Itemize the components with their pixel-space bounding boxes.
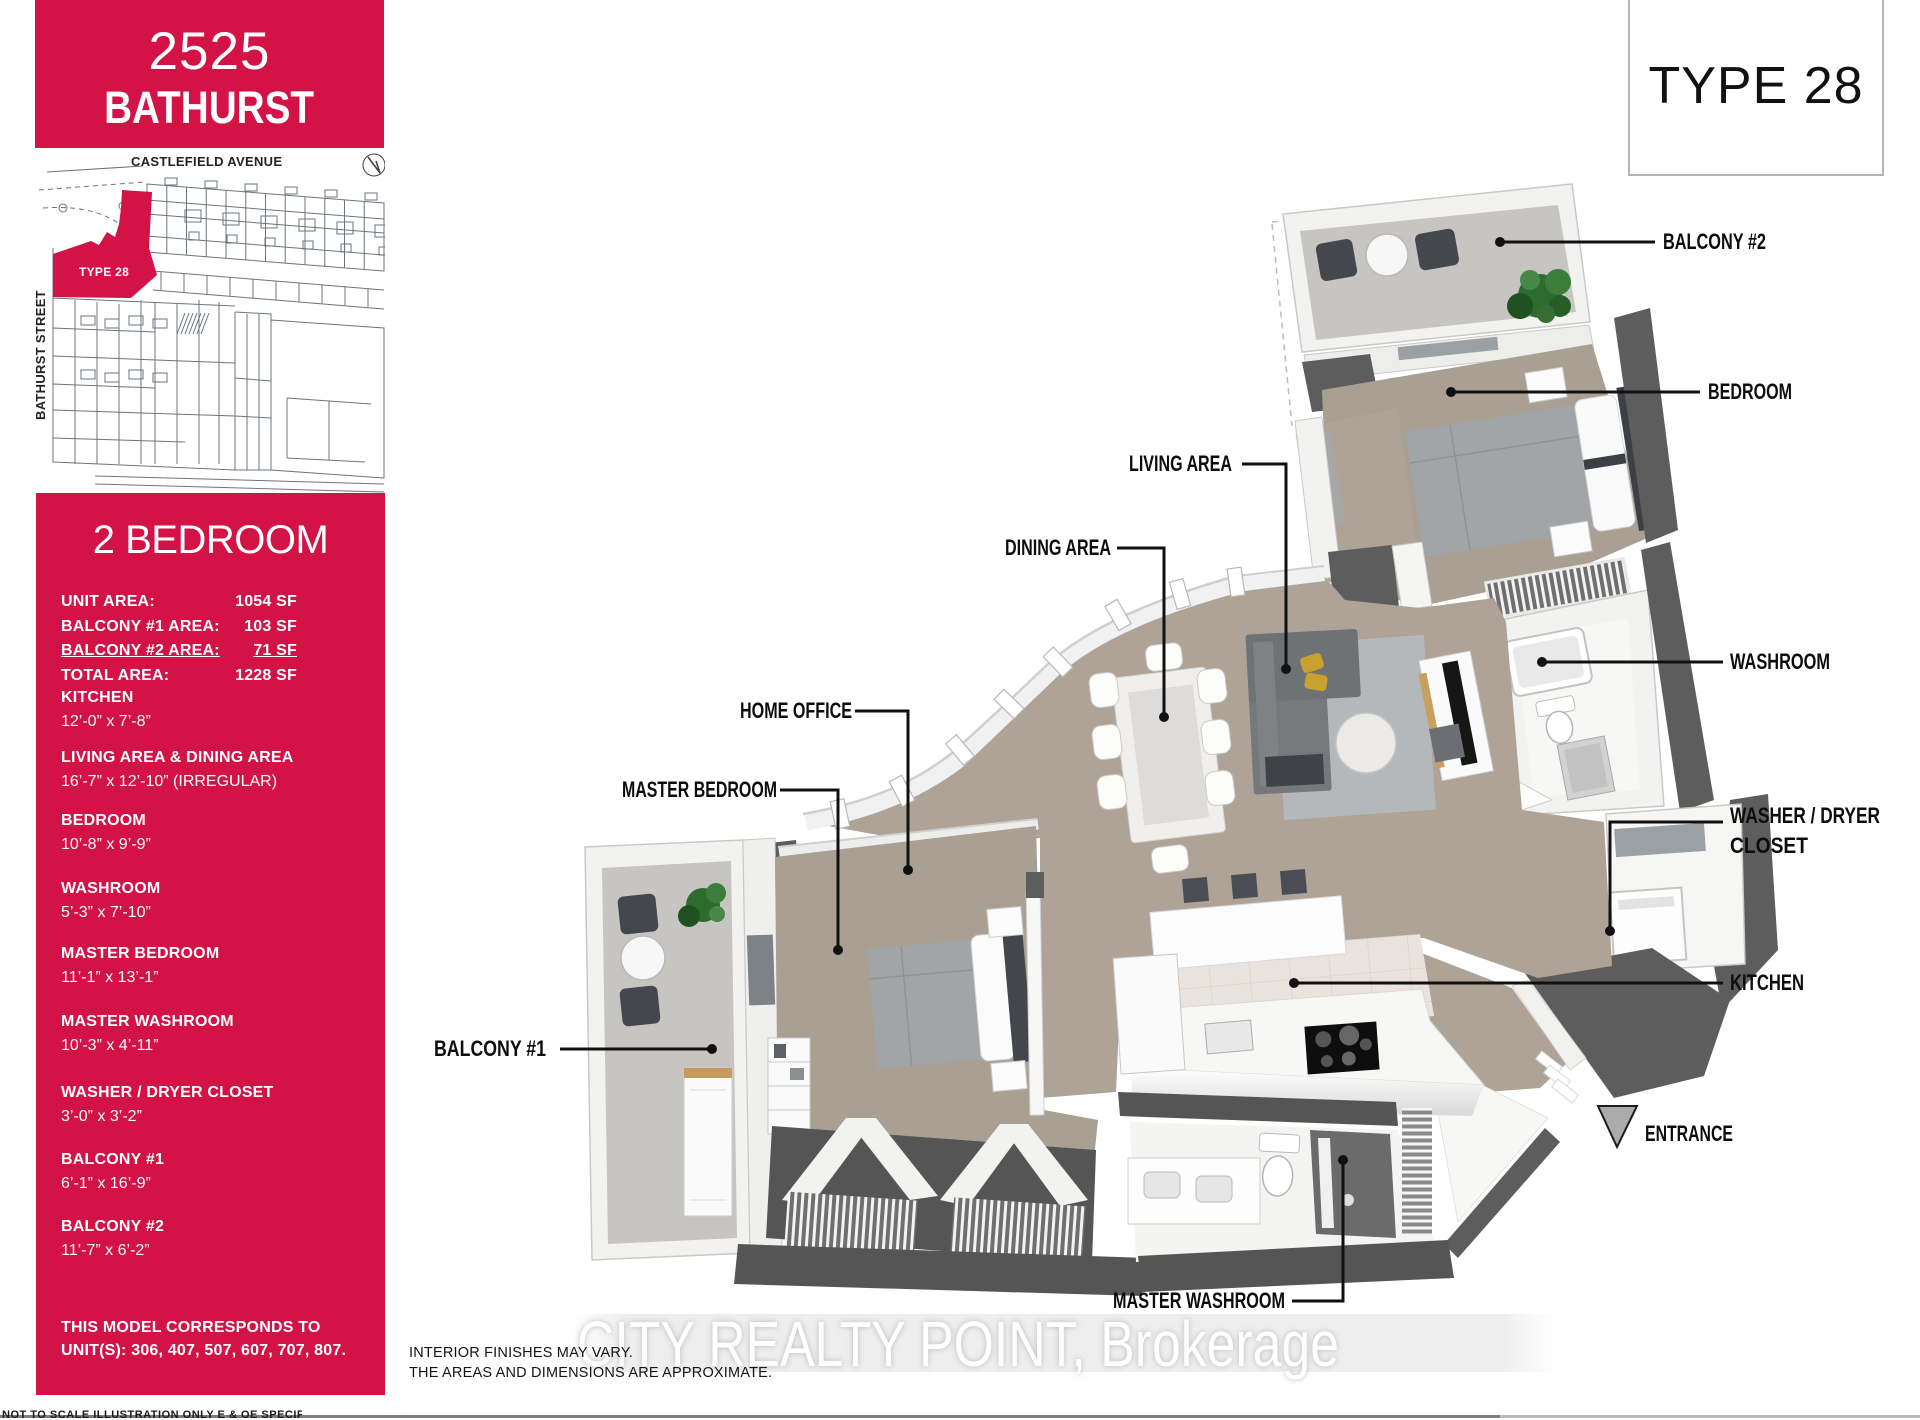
svg-text:BALCONY #2: BALCONY #2 [1663, 229, 1766, 254]
svg-text:HOME OFFICE: HOME OFFICE [740, 698, 852, 723]
svg-text:CLOSET: CLOSET [1730, 833, 1808, 858]
svg-text:MASTER BEDROOM: MASTER BEDROOM [622, 777, 777, 802]
svg-text:WASHROOM: WASHROOM [1730, 649, 1830, 674]
svg-text:DINING AREA: DINING AREA [1005, 535, 1111, 560]
svg-text:ENTRANCE: ENTRANCE [1645, 1121, 1733, 1146]
svg-text:WASHER / DRYER: WASHER / DRYER [1730, 803, 1880, 828]
svg-text:KITCHEN: KITCHEN [1730, 970, 1804, 995]
svg-text:BEDROOM: BEDROOM [1708, 379, 1792, 404]
svg-text:BALCONY #1: BALCONY #1 [434, 1036, 546, 1061]
svg-text:LIVING AREA: LIVING AREA [1129, 451, 1232, 476]
